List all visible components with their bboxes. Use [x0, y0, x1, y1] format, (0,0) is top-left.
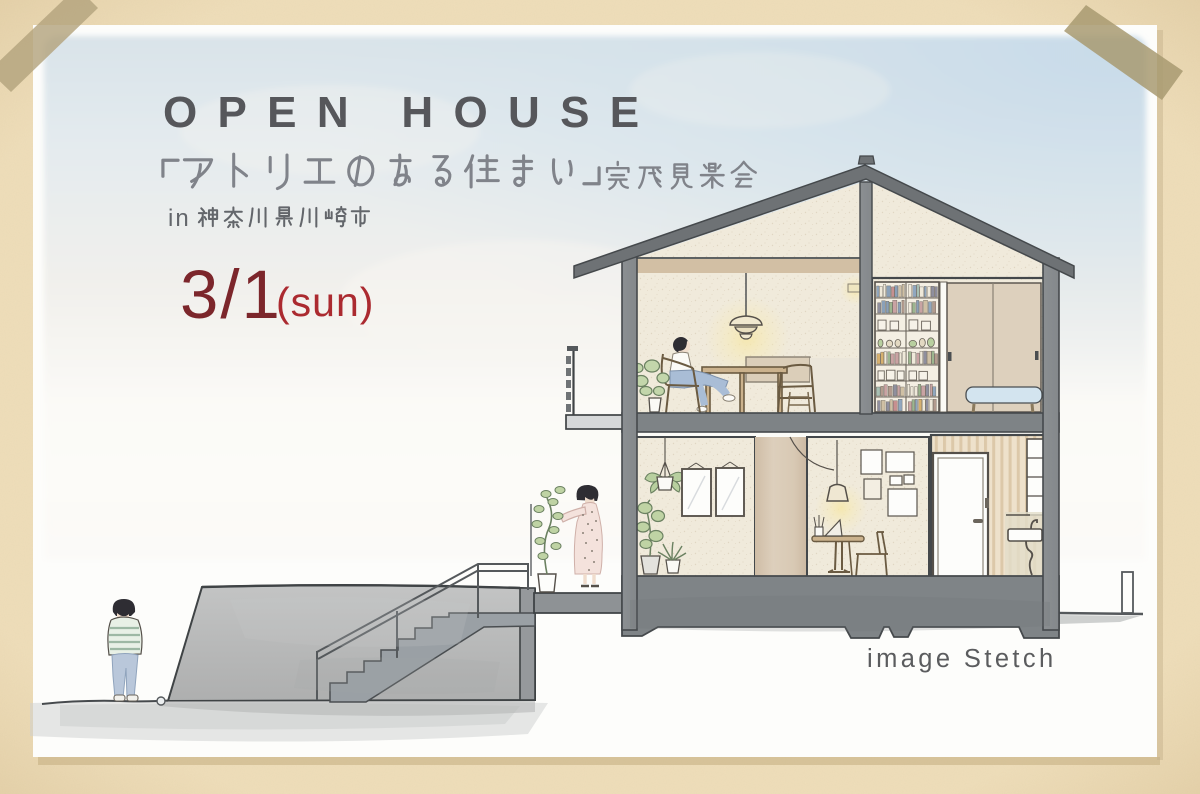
- svg-text:OPEN HOUSE: OPEN HOUSE: [163, 88, 659, 137]
- svg-text:in: in: [168, 205, 191, 232]
- svg-text:(sun): (sun): [276, 279, 374, 325]
- svg-text:image Stetch: image Stetch: [867, 645, 1057, 673]
- svg-text:3/1: 3/1: [180, 256, 282, 333]
